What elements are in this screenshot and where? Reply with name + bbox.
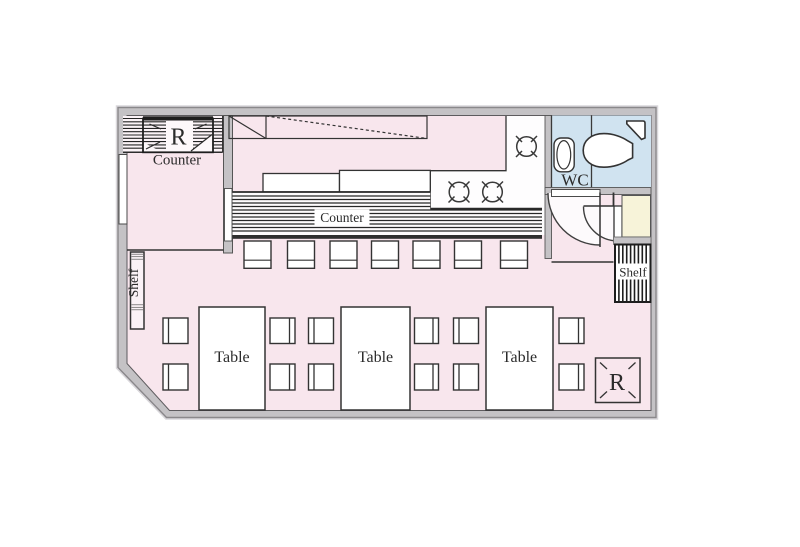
svg-text:Table: Table bbox=[214, 349, 249, 366]
svg-text:Shelf: Shelf bbox=[619, 265, 647, 280]
svg-text:R: R bbox=[609, 370, 625, 396]
svg-text:Table: Table bbox=[358, 349, 393, 366]
svg-text:Shelf: Shelf bbox=[126, 268, 141, 297]
svg-text:Counter: Counter bbox=[153, 153, 201, 169]
svg-text:Counter: Counter bbox=[320, 210, 364, 225]
svg-text:Table: Table bbox=[502, 349, 537, 366]
svg-text:R: R bbox=[170, 125, 186, 151]
svg-text:WC: WC bbox=[561, 171, 588, 190]
